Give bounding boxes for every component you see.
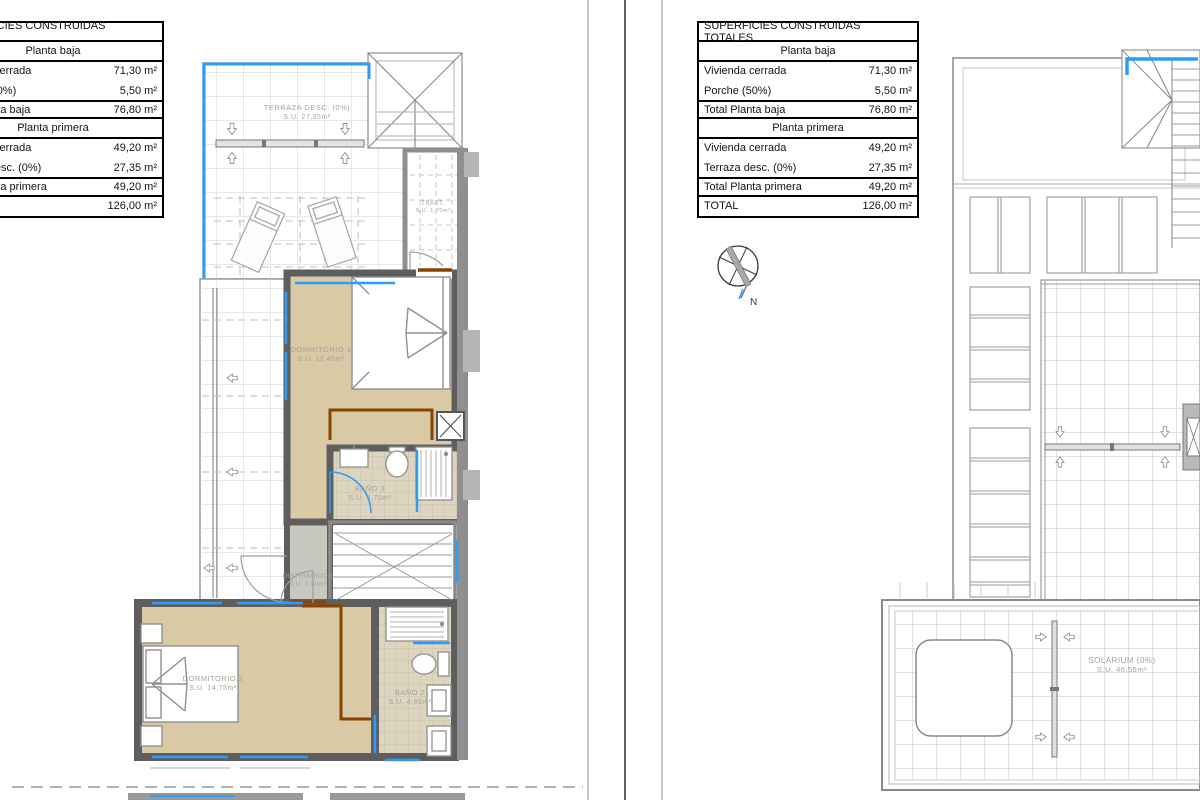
table-row: Vivienda cerrada71,30 m² [0, 62, 162, 81]
label-terraza-area: S.U. 27,35m² [283, 114, 330, 121]
label-bano3-area: S.U. 3,75m² [349, 495, 392, 502]
table-row-total: Total Planta primera49,20 m² [0, 177, 162, 196]
plan-sheet-canvas: TERRAZA DESC. (0%) S.U. 27,35m² TRAST. S… [0, 0, 1200, 800]
table-row: Porche (50%)5,50 m² [699, 81, 917, 100]
table-section-header: Planta primera [0, 119, 162, 138]
label-dormitorio2-name: DORMITORIO 2 [183, 674, 244, 683]
label-solarium-area: S.U. 46,55m² [1097, 665, 1147, 674]
compass-icon: N [718, 246, 758, 308]
table-row-total: Total Planta primera49,20 m² [699, 177, 917, 196]
label-bano2-name: BAÑO 2 [395, 688, 426, 697]
table-row: Porche (50%)5,50 m² [0, 81, 162, 100]
table-row-total: Total Planta baja76,80 m² [0, 100, 162, 119]
table-row: Vivienda cerrada49,20 m² [0, 139, 162, 158]
shaft-box [437, 412, 464, 440]
label-trastero-area: S.U. 1,70m² [416, 208, 451, 214]
table-section-header: Planta primera [699, 119, 917, 138]
solarium-area: SOLARIUM (0%) S.U. 46,55m² [882, 600, 1200, 790]
label-solarium-name: SOLARIUM (0%) [1088, 656, 1155, 665]
label-bano3-name: BAÑO 3 [355, 484, 386, 493]
table-row: Vivienda cerrada71,30 m² [699, 62, 917, 81]
label-bano2-area: S.U. 4,95m² [389, 699, 432, 706]
hallway-floor [287, 522, 330, 603]
table-title: SUPERFICIES CONSTRUIDAS TOTALES [699, 23, 917, 42]
table-row-grand-total: TOTAL126,00 m² [0, 197, 162, 216]
solarium-jacuzzi [916, 640, 1012, 736]
table-title: SUPERFICIES CONSTRUIDAS TOTALES [0, 23, 162, 42]
skylight [368, 53, 462, 148]
table-row: Terraza desc. (0%)27,35 m² [699, 158, 917, 177]
label-trastero-name: TRAST. [421, 201, 445, 207]
balcony [200, 279, 287, 603]
label-distribuidor-area: S.U. 1,80m² [289, 582, 327, 588]
label-dormitorio3-name: DORMITORIO 3 [291, 345, 352, 354]
table-row: Terraza desc. (0%)27,35 m² [0, 158, 162, 177]
bed-bedroom-3 [352, 277, 450, 389]
table-section-header: Planta baja [0, 42, 162, 61]
table-row-total: Total Planta baja76,80 m² [699, 100, 917, 119]
label-dormitorio2-area: S.U. 14,75m² [189, 685, 236, 692]
exterior-wall-band [457, 148, 468, 760]
table-section-header: Planta baja [699, 42, 917, 61]
area-table-right: SUPERFICIES CONSTRUIDAS TOTALES Planta b… [697, 21, 919, 218]
label-dormitorio3-area: S.U. 12,45m² [297, 356, 344, 363]
table-row: Vivienda cerrada49,20 m² [699, 139, 917, 158]
table-row-grand-total: TOTAL126,00 m² [699, 197, 917, 216]
area-table-left: SUPERFICIES CONSTRUIDAS TOTALES Planta b… [0, 21, 164, 218]
roof-tiled-area [1041, 280, 1200, 600]
floor-plans-drawing: TERRAZA DESC. (0%) S.U. 27,35m² TRAST. S… [0, 0, 1200, 800]
label-terraza-name: TERRAZA DESC. (0%) [264, 103, 351, 112]
label-distribuidor-name: DISTRIBUIDOR [283, 573, 333, 580]
compass-north-label: N [750, 297, 757, 308]
